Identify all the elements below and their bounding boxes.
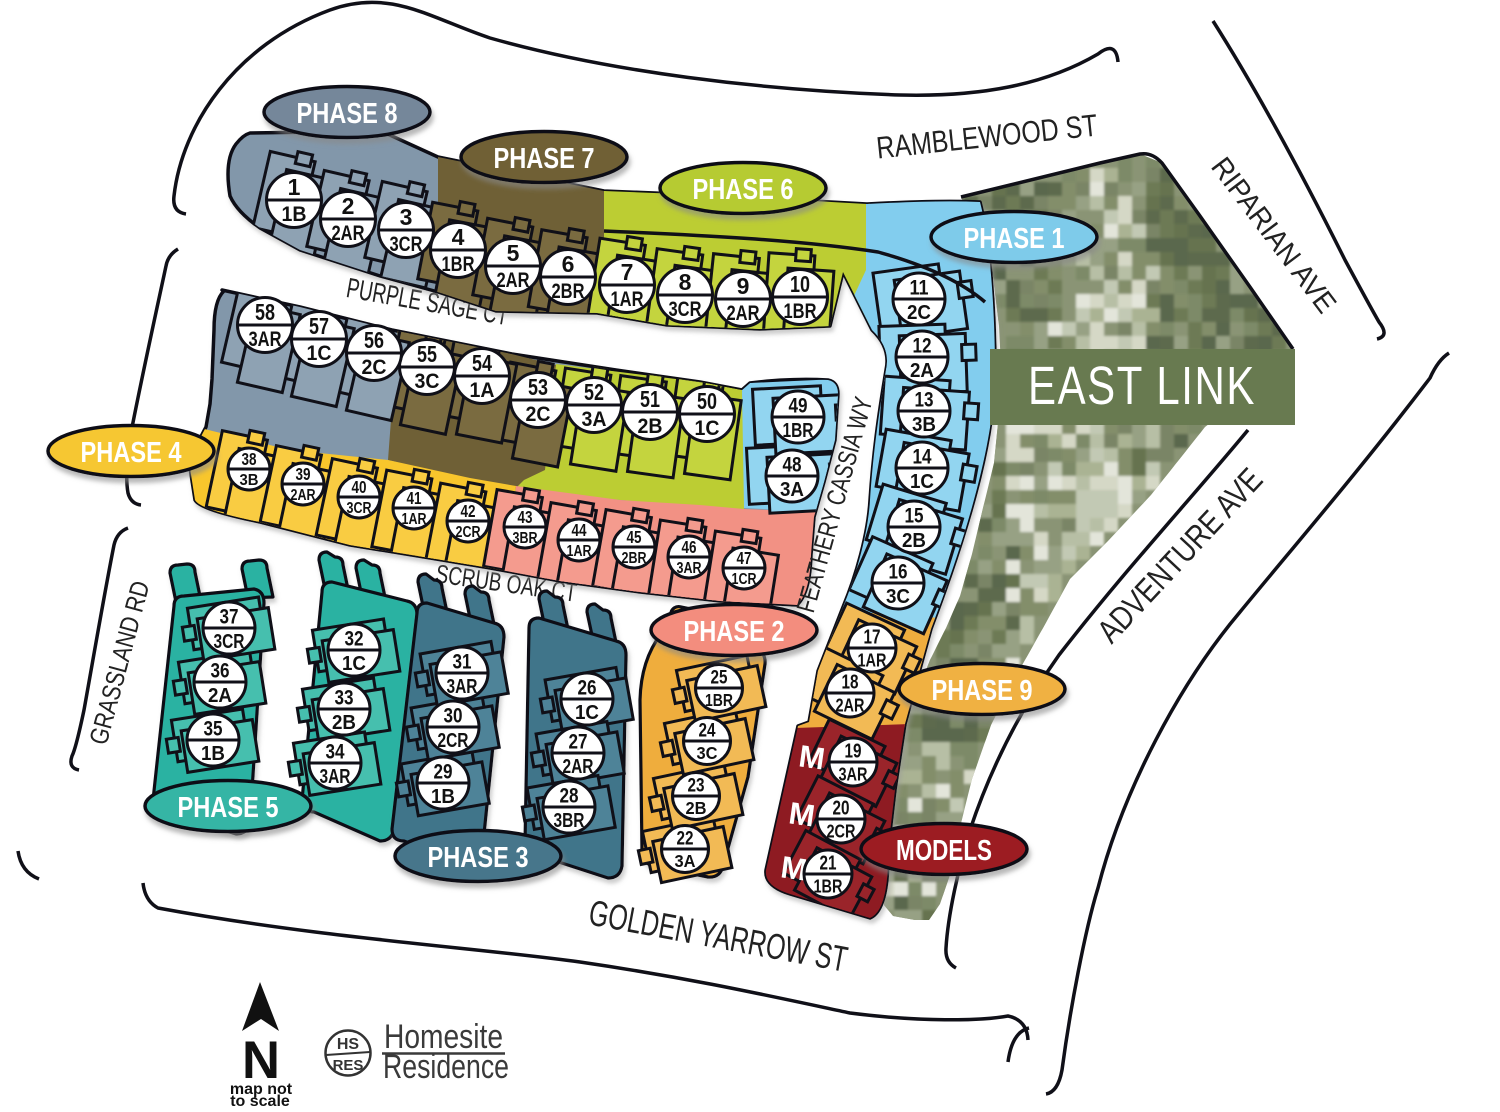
- svg-text:43: 43: [518, 507, 533, 527]
- svg-text:16: 16: [889, 558, 908, 583]
- svg-text:3BR: 3BR: [513, 530, 538, 547]
- svg-text:3A: 3A: [582, 408, 607, 431]
- svg-text:1B: 1B: [282, 203, 307, 226]
- svg-text:PHASE 6: PHASE 6: [693, 174, 794, 206]
- svg-text:20: 20: [833, 798, 850, 820]
- svg-text:2A: 2A: [208, 685, 232, 707]
- svg-text:22: 22: [677, 828, 694, 850]
- svg-text:1AR: 1AR: [858, 649, 887, 670]
- svg-text:26: 26: [578, 674, 597, 699]
- svg-text:17: 17: [864, 627, 881, 649]
- svg-text:5: 5: [507, 240, 520, 266]
- svg-text:RES: RES: [333, 1057, 364, 1074]
- svg-text:38: 38: [242, 449, 257, 469]
- svg-text:3AR: 3AR: [677, 560, 702, 577]
- svg-text:2BR: 2BR: [622, 550, 647, 567]
- svg-text:2CR: 2CR: [827, 820, 856, 841]
- svg-text:1BR: 1BR: [814, 875, 843, 896]
- svg-text:PHASE 5: PHASE 5: [178, 792, 279, 824]
- svg-text:54: 54: [472, 350, 492, 376]
- svg-text:2CR: 2CR: [456, 524, 481, 541]
- svg-text:3: 3: [400, 204, 413, 230]
- svg-text:PHASE 3: PHASE 3: [428, 842, 529, 874]
- svg-text:1AR: 1AR: [611, 288, 644, 311]
- svg-text:52: 52: [584, 379, 604, 405]
- svg-text:50: 50: [697, 388, 717, 414]
- svg-text:57: 57: [309, 313, 329, 339]
- svg-text:25: 25: [711, 667, 728, 689]
- svg-text:9: 9: [737, 273, 750, 299]
- svg-text:2AR: 2AR: [332, 222, 365, 245]
- svg-text:39: 39: [296, 464, 311, 484]
- svg-text:PHASE 4: PHASE 4: [81, 437, 182, 469]
- svg-text:3C: 3C: [886, 586, 910, 608]
- svg-text:14: 14: [913, 443, 932, 468]
- svg-text:29: 29: [434, 758, 453, 783]
- svg-text:24: 24: [699, 720, 716, 742]
- svg-text:1BR: 1BR: [784, 300, 817, 323]
- svg-text:10: 10: [790, 271, 810, 297]
- svg-text:53: 53: [528, 374, 548, 400]
- svg-text:36: 36: [211, 657, 230, 682]
- svg-text:11: 11: [910, 274, 929, 299]
- svg-text:2B: 2B: [332, 712, 356, 734]
- svg-text:3CR: 3CR: [669, 298, 702, 321]
- svg-text:1C: 1C: [695, 417, 720, 440]
- svg-text:46: 46: [682, 537, 697, 557]
- svg-text:34: 34: [326, 738, 345, 763]
- svg-text:1C: 1C: [910, 471, 934, 493]
- svg-text:2C: 2C: [907, 302, 931, 324]
- svg-text:1A: 1A: [470, 379, 495, 402]
- svg-text:1BR: 1BR: [442, 253, 475, 276]
- svg-text:12: 12: [913, 332, 932, 357]
- svg-text:32: 32: [345, 625, 364, 650]
- svg-text:7: 7: [621, 259, 634, 285]
- svg-text:3A: 3A: [780, 479, 804, 501]
- svg-text:31: 31: [453, 648, 472, 673]
- svg-text:37: 37: [220, 603, 239, 628]
- svg-text:2BR: 2BR: [552, 280, 585, 303]
- svg-text:13: 13: [915, 386, 934, 411]
- svg-text:3C: 3C: [415, 370, 440, 393]
- svg-text:PHASE 7: PHASE 7: [494, 143, 595, 175]
- svg-text:PHASE 2: PHASE 2: [684, 616, 785, 648]
- svg-text:1BR: 1BR: [783, 420, 814, 442]
- svg-text:42: 42: [461, 501, 476, 521]
- svg-text:2AR: 2AR: [497, 269, 530, 292]
- svg-text:33: 33: [335, 684, 354, 709]
- svg-text:3B: 3B: [912, 414, 936, 436]
- svg-text:47: 47: [737, 548, 752, 568]
- svg-text:45: 45: [627, 527, 642, 547]
- svg-text:2A: 2A: [910, 360, 934, 382]
- svg-text:M: M: [797, 738, 827, 776]
- svg-text:23: 23: [688, 775, 705, 797]
- svg-text:40: 40: [352, 477, 367, 497]
- svg-text:18: 18: [842, 672, 859, 694]
- svg-text:8: 8: [679, 269, 692, 295]
- svg-text:3C: 3C: [697, 743, 718, 763]
- svg-text:2AR: 2AR: [727, 302, 760, 325]
- svg-text:6: 6: [562, 251, 575, 277]
- svg-text:41: 41: [407, 488, 422, 508]
- svg-text:to scale: to scale: [230, 1093, 290, 1107]
- svg-text:51: 51: [640, 386, 660, 412]
- svg-text:3B: 3B: [240, 472, 259, 489]
- svg-text:1B: 1B: [431, 786, 455, 808]
- svg-text:Residence: Residence: [383, 1048, 509, 1086]
- svg-text:3CR: 3CR: [347, 500, 372, 517]
- svg-text:49: 49: [789, 392, 808, 417]
- svg-text:1: 1: [288, 174, 301, 200]
- svg-text:58: 58: [255, 299, 275, 325]
- svg-text:28: 28: [560, 782, 579, 807]
- svg-text:2B: 2B: [686, 798, 707, 818]
- svg-text:3AR: 3AR: [447, 676, 478, 698]
- svg-text:3A: 3A: [675, 851, 696, 871]
- svg-text:1C: 1C: [307, 342, 332, 365]
- svg-text:3AR: 3AR: [320, 766, 351, 788]
- svg-text:PHASE 9: PHASE 9: [932, 675, 1033, 707]
- svg-text:2AR: 2AR: [563, 756, 594, 778]
- svg-text:1AR: 1AR: [402, 511, 427, 528]
- svg-text:4: 4: [452, 224, 465, 250]
- svg-text:56: 56: [364, 327, 384, 353]
- svg-text:15: 15: [905, 502, 924, 527]
- svg-text:48: 48: [783, 451, 802, 476]
- svg-text:30: 30: [444, 702, 463, 727]
- svg-text:1AR: 1AR: [567, 543, 592, 560]
- svg-text:35: 35: [204, 715, 223, 740]
- svg-text:3AR: 3AR: [839, 763, 868, 784]
- svg-text:1B: 1B: [201, 743, 225, 765]
- svg-text:EAST LINK: EAST LINK: [1028, 356, 1256, 416]
- svg-text:M: M: [787, 795, 817, 833]
- svg-text:1C: 1C: [342, 653, 366, 675]
- svg-text:19: 19: [845, 741, 862, 763]
- svg-text:2B: 2B: [902, 530, 926, 552]
- svg-text:HS: HS: [337, 1036, 360, 1053]
- svg-text:1CR: 1CR: [732, 571, 757, 588]
- svg-text:PHASE 8: PHASE 8: [297, 98, 398, 130]
- svg-text:2AR: 2AR: [836, 694, 865, 715]
- svg-text:1BR: 1BR: [705, 690, 733, 710]
- svg-text:2CR: 2CR: [438, 730, 469, 752]
- svg-text:PHASE 1: PHASE 1: [964, 223, 1065, 255]
- svg-text:2C: 2C: [526, 403, 551, 426]
- svg-text:55: 55: [417, 341, 437, 367]
- svg-text:3CR: 3CR: [214, 631, 245, 653]
- svg-text:27: 27: [569, 728, 588, 753]
- svg-text:3BR: 3BR: [554, 810, 585, 832]
- svg-text:2B: 2B: [638, 415, 663, 438]
- svg-text:MODELS: MODELS: [896, 835, 992, 867]
- svg-text:2C: 2C: [362, 356, 387, 379]
- svg-text:3AR: 3AR: [249, 328, 282, 351]
- svg-text:44: 44: [572, 520, 587, 540]
- svg-text:3CR: 3CR: [390, 233, 423, 256]
- svg-text:2AR: 2AR: [291, 487, 316, 504]
- svg-text:1C: 1C: [575, 702, 599, 724]
- svg-text:2: 2: [342, 193, 355, 219]
- svg-text:21: 21: [820, 853, 837, 875]
